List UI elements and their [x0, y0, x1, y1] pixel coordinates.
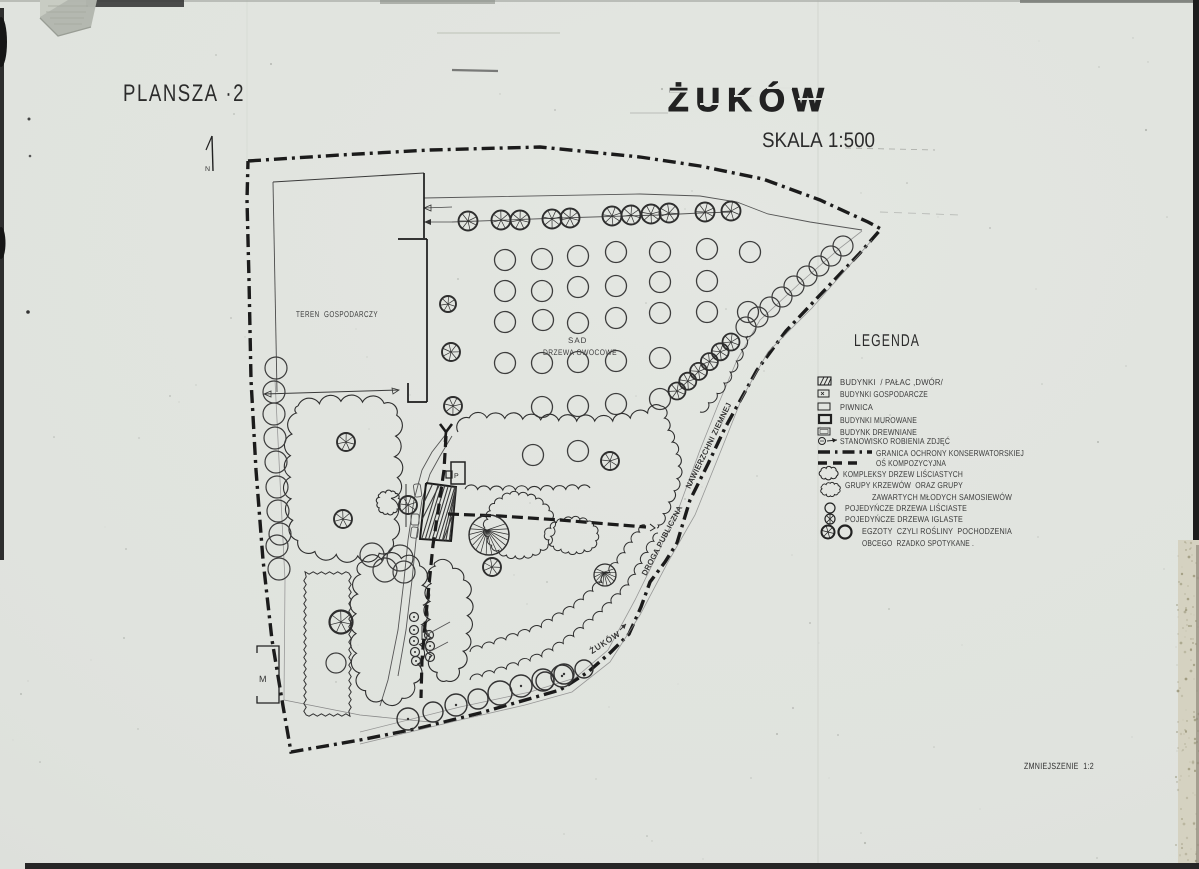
- svg-text:POJEDYŃCZE DRZEWA LIŚCIASTE: POJEDYŃCZE DRZEWA LIŚCIASTE: [845, 503, 967, 513]
- svg-text:BUDYNKI GOSPODARCZE: BUDYNKI GOSPODARCZE: [840, 389, 928, 399]
- svg-text:ZMNIEJSZENIE 1:2: ZMNIEJSZENIE 1:2: [1024, 761, 1094, 771]
- svg-text:DRZEWA OWOCOWE: DRZEWA OWOCOWE: [543, 348, 617, 357]
- svg-text:SAD: SAD: [568, 336, 587, 345]
- svg-text:OBCEGO RZADKO SPOTYKANE .: OBCEGO RZADKO SPOTYKANE .: [862, 538, 974, 548]
- svg-text:TEREN GOSPODARCZY: TEREN GOSPODARCZY: [296, 309, 378, 319]
- svg-text:OŚ KOMPOZYCYJNA: OŚ KOMPOZYCYJNA: [876, 458, 946, 468]
- svg-text:STANOWISKO ROBIENIA ZDJĘĆ: STANOWISKO ROBIENIA ZDJĘĆ: [840, 436, 950, 446]
- svg-text:EGZOTY CZYLI ROŚLINY POCHODZ: EGZOTY CZYLI ROŚLINY POCHODZENIA: [862, 526, 1012, 536]
- svg-text:P: P: [454, 473, 459, 480]
- svg-text:GRUPY KRZEWÓW ORAZ GRUPY: GRUPY KRZEWÓW ORAZ GRUPY: [845, 480, 963, 490]
- svg-text:BUDYNKI MUROWANE: BUDYNKI MUROWANE: [840, 415, 917, 425]
- svg-text:POJEDYŃCZE DRZEWA IGLASTE: POJEDYŃCZE DRZEWA IGLASTE: [845, 514, 963, 524]
- svg-text:N: N: [205, 166, 210, 173]
- svg-text:PLANSZA ·2: PLANSZA ·2: [123, 80, 245, 107]
- svg-text:GRANICA OCHRONY KONSERWATORSKI: GRANICA OCHRONY KONSERWATORSKIEJ: [876, 448, 1024, 458]
- svg-text:PIWNICA: PIWNICA: [840, 402, 873, 412]
- svg-text:SKALA 1:500: SKALA 1:500: [762, 129, 875, 152]
- svg-text:BUDYNKI / PAŁAC ,DWÓR/: BUDYNKI / PAŁAC ,DWÓR/: [840, 377, 943, 387]
- svg-text:LEGENDA: LEGENDA: [854, 331, 920, 350]
- svg-text:KOMPLEKSY DRZEW LIŚCIASTYCH: KOMPLEKSY DRZEW LIŚCIASTYCH: [843, 469, 963, 479]
- svg-text:M: M: [259, 674, 267, 684]
- svg-text:ZAWARTYCH MŁODYCH SAMOSIEWÓW: ZAWARTYCH MŁODYCH SAMOSIEWÓW: [872, 492, 1012, 502]
